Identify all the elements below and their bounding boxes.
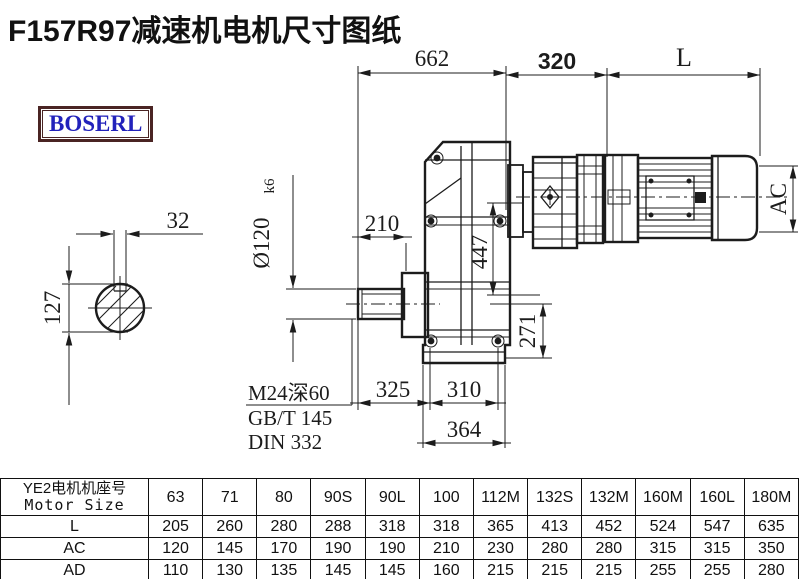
- col-header: 90L: [365, 479, 419, 516]
- cell: 145: [311, 560, 365, 579]
- note-tap: M24深60: [248, 381, 330, 405]
- cell: 230: [473, 538, 527, 560]
- tapped-hole-note: M24深60 GB/T 145 DIN 332: [246, 319, 352, 454]
- cell: 170: [257, 538, 311, 560]
- col-header: 100: [419, 479, 473, 516]
- dim-127: 127: [40, 246, 128, 405]
- cell: 205: [149, 516, 203, 538]
- dim-label-210: 210: [365, 211, 400, 236]
- housing-bolts: [425, 152, 506, 347]
- dim-label-325: 325: [376, 377, 411, 402]
- dim-label-AC: AC: [766, 183, 791, 215]
- dim-label-320: 320: [538, 48, 576, 74]
- cell: 255: [690, 560, 744, 579]
- fan-cover: [712, 156, 757, 240]
- cell: 365: [473, 516, 527, 538]
- row-label: L: [1, 516, 149, 538]
- col-header: 132S: [528, 479, 582, 516]
- dim-32: 32: [76, 208, 203, 234]
- cell: 190: [311, 538, 365, 560]
- cell: 547: [690, 516, 744, 538]
- eyebolt-symbol: [541, 186, 559, 208]
- cell: 145: [203, 538, 257, 560]
- cell: 524: [636, 516, 690, 538]
- cell: 255: [636, 560, 690, 579]
- cell: 120: [149, 538, 203, 560]
- cell: 280: [528, 538, 582, 560]
- cell: 145: [365, 560, 419, 579]
- cell: 210: [419, 538, 473, 560]
- dim-label-shaft-tol: k6: [262, 178, 278, 194]
- dim-label-662: 662: [415, 46, 450, 71]
- cell: 215: [582, 560, 636, 579]
- dim-271: 271: [490, 304, 552, 358]
- table-row-L: L 205 260 280 288 318 318 365 413 452 52…: [1, 516, 799, 538]
- motor-body: [638, 158, 712, 238]
- col-header: 132M: [582, 479, 636, 516]
- row-label: AC: [1, 538, 149, 560]
- col-header: 80: [257, 479, 311, 516]
- dim-shaft-dia: Ø120 k6: [249, 175, 356, 362]
- main-view: 662 320 L AC 210: [246, 43, 798, 454]
- table-header-row: YE2电机机座号 Motor Size 63 71 80 90S 90L 100…: [1, 479, 799, 516]
- cell: 315: [636, 538, 690, 560]
- col-header: 160M: [636, 479, 690, 516]
- motor-terminal: [695, 192, 706, 203]
- note-gb: GB/T 145: [248, 406, 332, 430]
- col-header: 180M: [744, 479, 798, 516]
- cell: 280: [744, 560, 798, 579]
- col-header: 71: [203, 479, 257, 516]
- dim-label-L: L: [676, 43, 692, 72]
- dim-label-shaft-dia: Ø120: [249, 217, 274, 268]
- cell: 350: [744, 538, 798, 560]
- cell: 288: [311, 516, 365, 538]
- shaft-section-view: 32 127: [40, 208, 203, 405]
- motor-size-table: YE2电机机座号 Motor Size 63 71 80 90S 90L 100…: [0, 478, 799, 579]
- dim-AC: AC: [759, 166, 798, 232]
- col-header: 112M: [473, 479, 527, 516]
- table-row-AD: AD 110 130 135 145 145 160 215 215 215 2…: [1, 560, 799, 579]
- cell: 190: [365, 538, 419, 560]
- table-row-AC: AC 120 145 170 190 190 210 230 280 280 3…: [1, 538, 799, 560]
- table-header-motor-size: YE2电机机座号 Motor Size: [1, 479, 149, 516]
- cell: 318: [419, 516, 473, 538]
- cell: 318: [365, 516, 419, 538]
- col-header: 160L: [690, 479, 744, 516]
- dim-320: 320: [506, 48, 607, 157]
- cell: 135: [257, 560, 311, 579]
- dim-label-364: 364: [447, 417, 482, 442]
- cell: 315: [690, 538, 744, 560]
- dim-label-271: 271: [515, 314, 540, 349]
- cell: 413: [528, 516, 582, 538]
- cell: 215: [528, 560, 582, 579]
- dim-label-447: 447: [467, 235, 492, 270]
- dim-325-310: 325 310: [350, 348, 506, 410]
- cell: 635: [744, 516, 798, 538]
- cell: 130: [203, 560, 257, 579]
- cell: 260: [203, 516, 257, 538]
- motor-assembly: [508, 155, 790, 248]
- col-header: 90S: [311, 479, 365, 516]
- dim-210: 210: [352, 211, 412, 271]
- col-header: 63: [149, 479, 203, 516]
- dim-label-32: 32: [167, 208, 190, 233]
- cell: 160: [419, 560, 473, 579]
- cell: 110: [149, 560, 203, 579]
- cell: 215: [473, 560, 527, 579]
- drawing-page: F157R97减速机电机尺寸图纸 BOSERL: [0, 0, 800, 579]
- note-din: DIN 332: [248, 430, 322, 454]
- dim-label-310: 310: [447, 377, 482, 402]
- dim-L: L: [607, 43, 760, 156]
- row-label: AD: [1, 560, 149, 579]
- cell: 280: [582, 538, 636, 560]
- dim-label-127: 127: [40, 291, 65, 326]
- cell: 452: [582, 516, 636, 538]
- cell: 280: [257, 516, 311, 538]
